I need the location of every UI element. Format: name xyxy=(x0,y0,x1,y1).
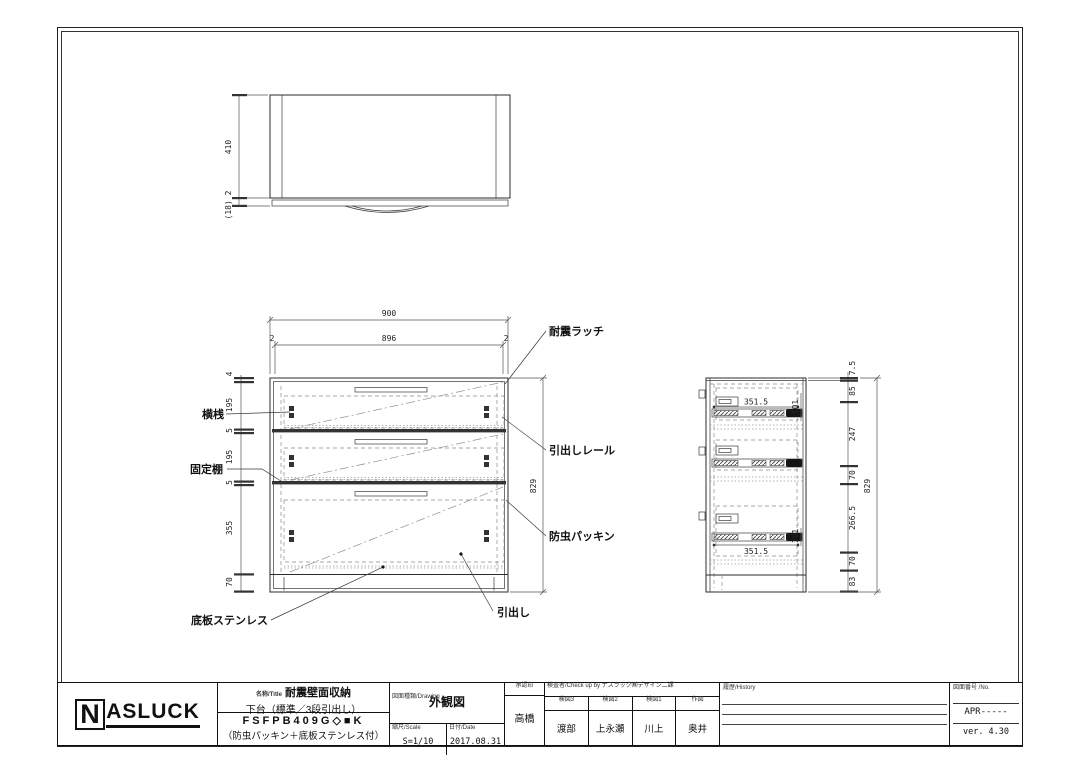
label-teiban-stainless: 底板ステンレス xyxy=(191,613,268,627)
wall-clip xyxy=(699,447,705,455)
dim-rail-length-top: 351.5 xyxy=(744,398,768,407)
cad-drawing: 410 (18) 2 xyxy=(0,0,1080,764)
handle-slot xyxy=(355,440,427,445)
product-title: 耐震壁面収納 xyxy=(285,684,351,700)
scale-label: 縮尺/Scale xyxy=(392,725,421,732)
checker-name-4: 奥井 xyxy=(676,711,719,745)
dim-85: 85 xyxy=(848,386,857,396)
title-label: 名称/Title xyxy=(256,692,282,699)
history-rule xyxy=(722,714,947,715)
dim-195a: 195 xyxy=(225,398,234,413)
approval-name: 高橋 xyxy=(505,710,544,725)
history-rule xyxy=(722,704,947,705)
dim-70a: 70 xyxy=(848,470,857,480)
drawing-type-cell: 図面種類/Drawing 外観図 縮尺/Scale S=1/10 日付/Date… xyxy=(390,683,505,745)
rail-assembly-3: 351.5 101 xyxy=(710,506,803,564)
dim-top-edge: (18) 2 xyxy=(224,190,233,219)
dim-355: 355 xyxy=(225,521,234,536)
check-col-label-1: 検図3 xyxy=(545,697,589,710)
dim-rail-height-top: 101 xyxy=(791,400,800,415)
history-rule xyxy=(722,724,947,725)
checker-name-3: 川上 xyxy=(633,711,677,745)
drawing-label: 図面種類/Drawing xyxy=(392,694,440,701)
checker-name-2: 上永瀬 xyxy=(589,711,633,745)
approval-label: 承認印 xyxy=(505,683,544,696)
check-label: 検査者/Check up by ナスラック㈱デザイン二課 xyxy=(545,683,719,697)
history-cell: 履歴/History xyxy=(720,683,950,745)
dim-829-side: 829 xyxy=(863,479,872,494)
dim-896: 896 xyxy=(382,334,397,343)
nasluck-logo: NASLUCK xyxy=(75,699,200,730)
dim-5b: 5 xyxy=(225,480,234,485)
approval-cell: 承認印 高橋 xyxy=(505,683,545,745)
side-right-dims: 7.5 85 247 70 266.5 70 83 xyxy=(808,361,858,593)
fixed-shelf-1 xyxy=(272,429,506,432)
front-width-dims: 900 896 2 2 xyxy=(267,309,511,374)
handle-slot xyxy=(355,388,427,393)
drawing-number: APR----- xyxy=(950,707,1022,717)
date-value: 2017.08.31 xyxy=(447,737,504,747)
dim-top-height: 410 xyxy=(224,140,233,155)
label-kotei-dana: 固定棚 xyxy=(190,462,223,476)
check-col-label-3: 検図1 xyxy=(633,697,677,710)
dim-70b: 70 xyxy=(848,556,857,566)
dim-rail-height-bottom: 101 xyxy=(791,529,800,544)
wall-clip xyxy=(699,512,705,520)
label-hikidashi-rail: 引出しレール xyxy=(549,443,615,457)
date-label: 日付/Date xyxy=(449,725,475,732)
drawer-3 xyxy=(284,487,504,572)
wall-clip xyxy=(699,390,705,398)
logo-text: ASLUCK xyxy=(106,700,200,728)
logo-cell: NASLUCK xyxy=(58,683,218,745)
drawing-sheet: 410 (18) 2 xyxy=(0,0,1080,764)
front-view: 900 896 2 2 4 xyxy=(190,309,615,627)
drawing-number-cell: 図面番号 /No. APR----- ver. 4.30 xyxy=(950,683,1022,745)
dim-83: 83 xyxy=(848,577,857,587)
number-rule xyxy=(953,723,1019,724)
scale-value: S=1/10 xyxy=(390,737,446,747)
front-labels: 耐震ラッチ 引出しレール 防虫パッキン 引出し 底板ステンレス 横桟 固定棚 xyxy=(190,324,615,627)
logo-n: N xyxy=(75,699,105,730)
rail-assembly-2 xyxy=(710,440,803,481)
check-cell: 検査者/Check up by ナスラック㈱デザイン二課 検図3 検図2 検図1… xyxy=(545,683,720,745)
drawing-version: ver. 4.30 xyxy=(950,727,1022,737)
label-hikidashi: 引出し xyxy=(497,605,530,619)
dim-266-5: 266.5 xyxy=(848,506,857,530)
dim-195b: 195 xyxy=(225,450,234,465)
dim-gap-right: 2 xyxy=(504,334,509,343)
rail-assembly-1: 351.5 101 xyxy=(710,388,803,429)
title-block: NASLUCK 名称/Title 耐震壁面収納 下台（標準／3段引出し） FSF… xyxy=(57,682,1023,746)
dim-247: 247 xyxy=(848,427,857,442)
title-cell: 名称/Title 耐震壁面収納 下台（標準／3段引出し） FSFPB409G◇■… xyxy=(218,683,390,745)
front-left-dims: 4 195 5 195 5 355 70 xyxy=(225,371,254,592)
model-number: FSFPB409G◇■K xyxy=(218,714,389,727)
side-view: 351.5 101 xyxy=(699,361,881,595)
drawer-2 xyxy=(284,434,504,480)
label-taishin-latch: 耐震ラッチ xyxy=(549,324,604,338)
front-edge xyxy=(272,200,508,206)
dim-7-5: 7.5 xyxy=(848,361,857,376)
dim-829-front: 829 xyxy=(529,479,538,494)
handle-slot xyxy=(355,492,427,497)
drawer-1 xyxy=(284,382,504,429)
label-bochu-packing: 防虫パッキン xyxy=(549,529,615,543)
dim-5a: 5 xyxy=(225,428,234,433)
dim-rail-length-bottom: 351.5 xyxy=(744,547,768,556)
top-view: 410 (18) 2 xyxy=(224,94,510,219)
history-label: 履歴/History xyxy=(723,685,755,692)
model-note: （防虫パッキン＋底板ステンレス付） xyxy=(218,728,389,742)
dim-4: 4 xyxy=(225,371,234,376)
fixed-shelf-2 xyxy=(272,481,506,484)
handle-recess-arc xyxy=(345,206,429,213)
checker-name-1: 渡部 xyxy=(545,711,589,745)
number-rule xyxy=(953,703,1019,704)
front-height-dim: 829 xyxy=(510,375,547,595)
dim-900: 900 xyxy=(382,309,397,318)
dim-70: 70 xyxy=(225,577,234,587)
label-yokozan: 横桟 xyxy=(202,407,224,421)
check-col-label-4: 作図 xyxy=(676,697,719,710)
check-col-label-2: 検図2 xyxy=(589,697,633,710)
number-label: 図面番号 /No. xyxy=(953,685,990,692)
dim-gap-left: 2 xyxy=(270,334,275,343)
